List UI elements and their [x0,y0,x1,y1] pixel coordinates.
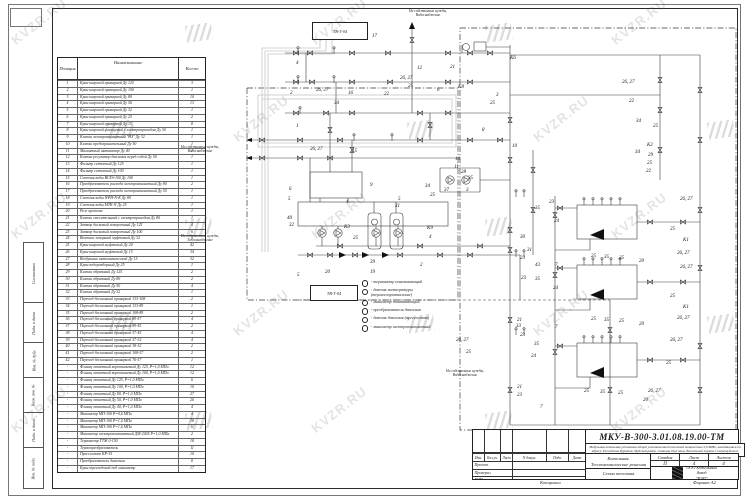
position-label: К6 [509,56,516,61]
position-label: 25 [591,254,597,259]
position-label: 16 [348,91,354,96]
position-label: 4 [296,61,299,66]
position-label: 25 [466,350,472,355]
instrument-circle-icon [362,317,368,323]
stage-label: Стадия [651,454,680,461]
position-label: 26, 27 [648,389,661,394]
position-label: 20 [639,259,645,264]
note-own-needs-water-bottom: На собственные нужды, Водоснабжение [430,369,500,378]
legend-item: - датчик давления (прессостат) [362,316,430,323]
company-cell: ООО Котельный Завод "РЭП" [650,466,739,480]
boiler-units [577,205,637,377]
position-label: 26, 27 [316,88,329,93]
position-label: 11 [454,165,459,170]
drawing-sheet: СогласованоПодп. и датаИнв. № дубл.Взам.… [0,0,750,500]
position-label: 43 [535,263,541,268]
legend-item: - манометр показывающий [362,300,430,307]
position-label: 25 [619,256,625,261]
position-label: 17 [372,34,378,39]
note-own-needs-water-left: На собственные нужды, Водоснабжение [163,145,237,154]
position-label: К8 [457,85,464,90]
sheets-label: Листов [709,454,738,461]
position-label: 30 [520,235,526,240]
legend-item: - датчик температуры (термосопротивление… [362,288,430,298]
position-label: 25 [653,124,659,129]
position-label: 35 [600,390,606,395]
position-label: 5 [297,273,300,278]
position-label: 20 [643,398,649,403]
position-label: 7 [555,325,558,330]
aux-components [462,42,510,53]
position-label: 8 [482,128,485,133]
position-label: 20 [325,270,331,275]
legend: - термометр показывающий- датчик темпера… [362,280,430,333]
position-label: 26, 27 [677,316,690,321]
position-label: 6 [289,187,292,192]
position-label: 24 [531,354,537,359]
position-label: 2 [420,263,423,268]
company-name: ООО Котельный Завод "РЭП" [686,466,716,480]
position-label: 15 [352,149,358,154]
position-label: 26, 27 [677,251,690,256]
position-label: 23 [521,276,527,281]
position-label: 35 [535,206,541,211]
position-label: 23 [517,393,523,398]
position-label: 34 [425,184,431,189]
instrument-circle-icon [362,325,368,331]
position-label: 26, 27 [622,80,635,85]
position-label: 31 [395,204,400,209]
position-label: 26, 27 [680,197,693,202]
position-label: 3 [496,93,499,98]
position-label: К9 [426,226,433,231]
controller-box-top: ТВ-Т-04 [312,22,368,40]
revision-header-row: Изм.Кол.уч.ЛистN докум.Подп.Дата [473,453,586,461]
position-label: 34 [334,101,340,106]
footer-copied: Копировал [540,480,561,485]
position-label: 40 [287,216,293,221]
position-label: 4 [346,200,349,205]
position-label: 10 [455,157,461,162]
position-label: 10 [512,144,518,149]
legend-item: - манометр электроконтактный [362,325,430,332]
heat-exchanger [298,172,448,226]
position-label: 6 [437,88,440,93]
position-label: 39 [370,260,376,265]
position-label: 26, 27 [456,338,469,343]
position-label: 25 [670,227,676,232]
position-label: 29 [648,153,654,158]
footer-format: Формат А2 [693,480,716,485]
position-label: 9 [370,183,373,188]
position-label: 25 [490,101,496,106]
legend-item: - преобразователь давления [362,308,430,315]
position-label: 25 [430,193,436,198]
position-label: 22 [646,169,652,174]
instrument-circle-icon [362,280,368,286]
cable-runs [258,38,456,300]
instrument-circle-icon [362,300,368,306]
instrument-circle-icon [362,289,368,295]
signature-row: Проверил [473,469,586,477]
position-label: 25 [584,389,590,394]
position-label: 22 [629,99,635,104]
titleblock-left: Изм.Кол.уч.ЛистN докум.Подп.Дата Проект.… [472,429,587,480]
position-label: 25 [619,319,625,324]
position-label: 25 [468,176,474,181]
position-label: 32 [289,223,295,228]
position-label: 23 [520,333,526,338]
sheet-title: Схема тепловая [585,468,652,480]
position-label: 25 [618,391,624,396]
position-label: 20 [639,322,645,327]
position-label: К2 [646,143,653,148]
position-label: К1 [682,238,689,243]
position-label: 25 [353,236,359,241]
company-logo [672,466,683,480]
position-label: 21 [517,385,522,390]
signature-row: ГИП [473,476,586,480]
position-label: 19 [370,270,376,275]
position-label: 26, 27 [680,265,693,270]
position-label: 1 [296,124,299,129]
position-label: 26, 27 [670,338,683,343]
note-own-needs-heat-left: На собственные нужды, Теплоснабжение [163,234,237,243]
position-label: 23 [549,200,555,205]
position-label: 21 [517,318,522,323]
position-label: 33 [516,324,522,329]
position-label: 5 [288,197,291,202]
position-label: 26, 27 [400,76,413,81]
position-label: 35 [534,342,540,347]
position-label: 25 [666,361,672,366]
position-label: 5 [398,197,401,202]
pipe-network [252,26,700,425]
position-label: 22 [384,92,390,97]
position-label: 7 [540,405,543,410]
signature-row: Проект. [473,461,586,469]
position-label: 25 [591,317,597,322]
position-label: 25 [647,161,653,166]
thermal-scheme: 4171226, 2721К6163426, 27222256К8325126,… [0,0,750,500]
note-own-needs-water-top: На собственные нужды, Водоснабжение [388,9,468,18]
position-label: 34 [635,150,641,155]
position-label: 25 [670,294,676,299]
position-label: 25 [408,84,414,89]
position-label: 23 [520,256,526,261]
position-label: 28 [461,170,467,175]
position-label: 35 [604,318,610,323]
position-label: К1 [682,305,689,310]
revision-rows [473,430,586,453]
position-label: 35 [535,277,541,282]
position-label: К3 [343,225,350,230]
controller-box-bottom: ТВ-Т-04 [310,285,358,301]
position-label: 26, 27 [310,147,323,152]
position-label: 21 [450,65,455,70]
legend-item: - термометр показывающий [362,280,430,287]
position-label: 12 [417,66,423,71]
position-label: 24 [553,286,559,291]
sheet-label: Лист [680,454,709,461]
position-label: 4 [429,235,432,240]
position-label: 24 [554,219,560,224]
instrument-circle-icon [362,308,368,314]
position-label: 31 [527,248,532,253]
position-label: 35 [604,255,610,260]
position-label: 34 [636,119,642,124]
signature-rows: Проект.ПроверилГИП [473,461,586,480]
position-label: 37 [444,188,450,193]
